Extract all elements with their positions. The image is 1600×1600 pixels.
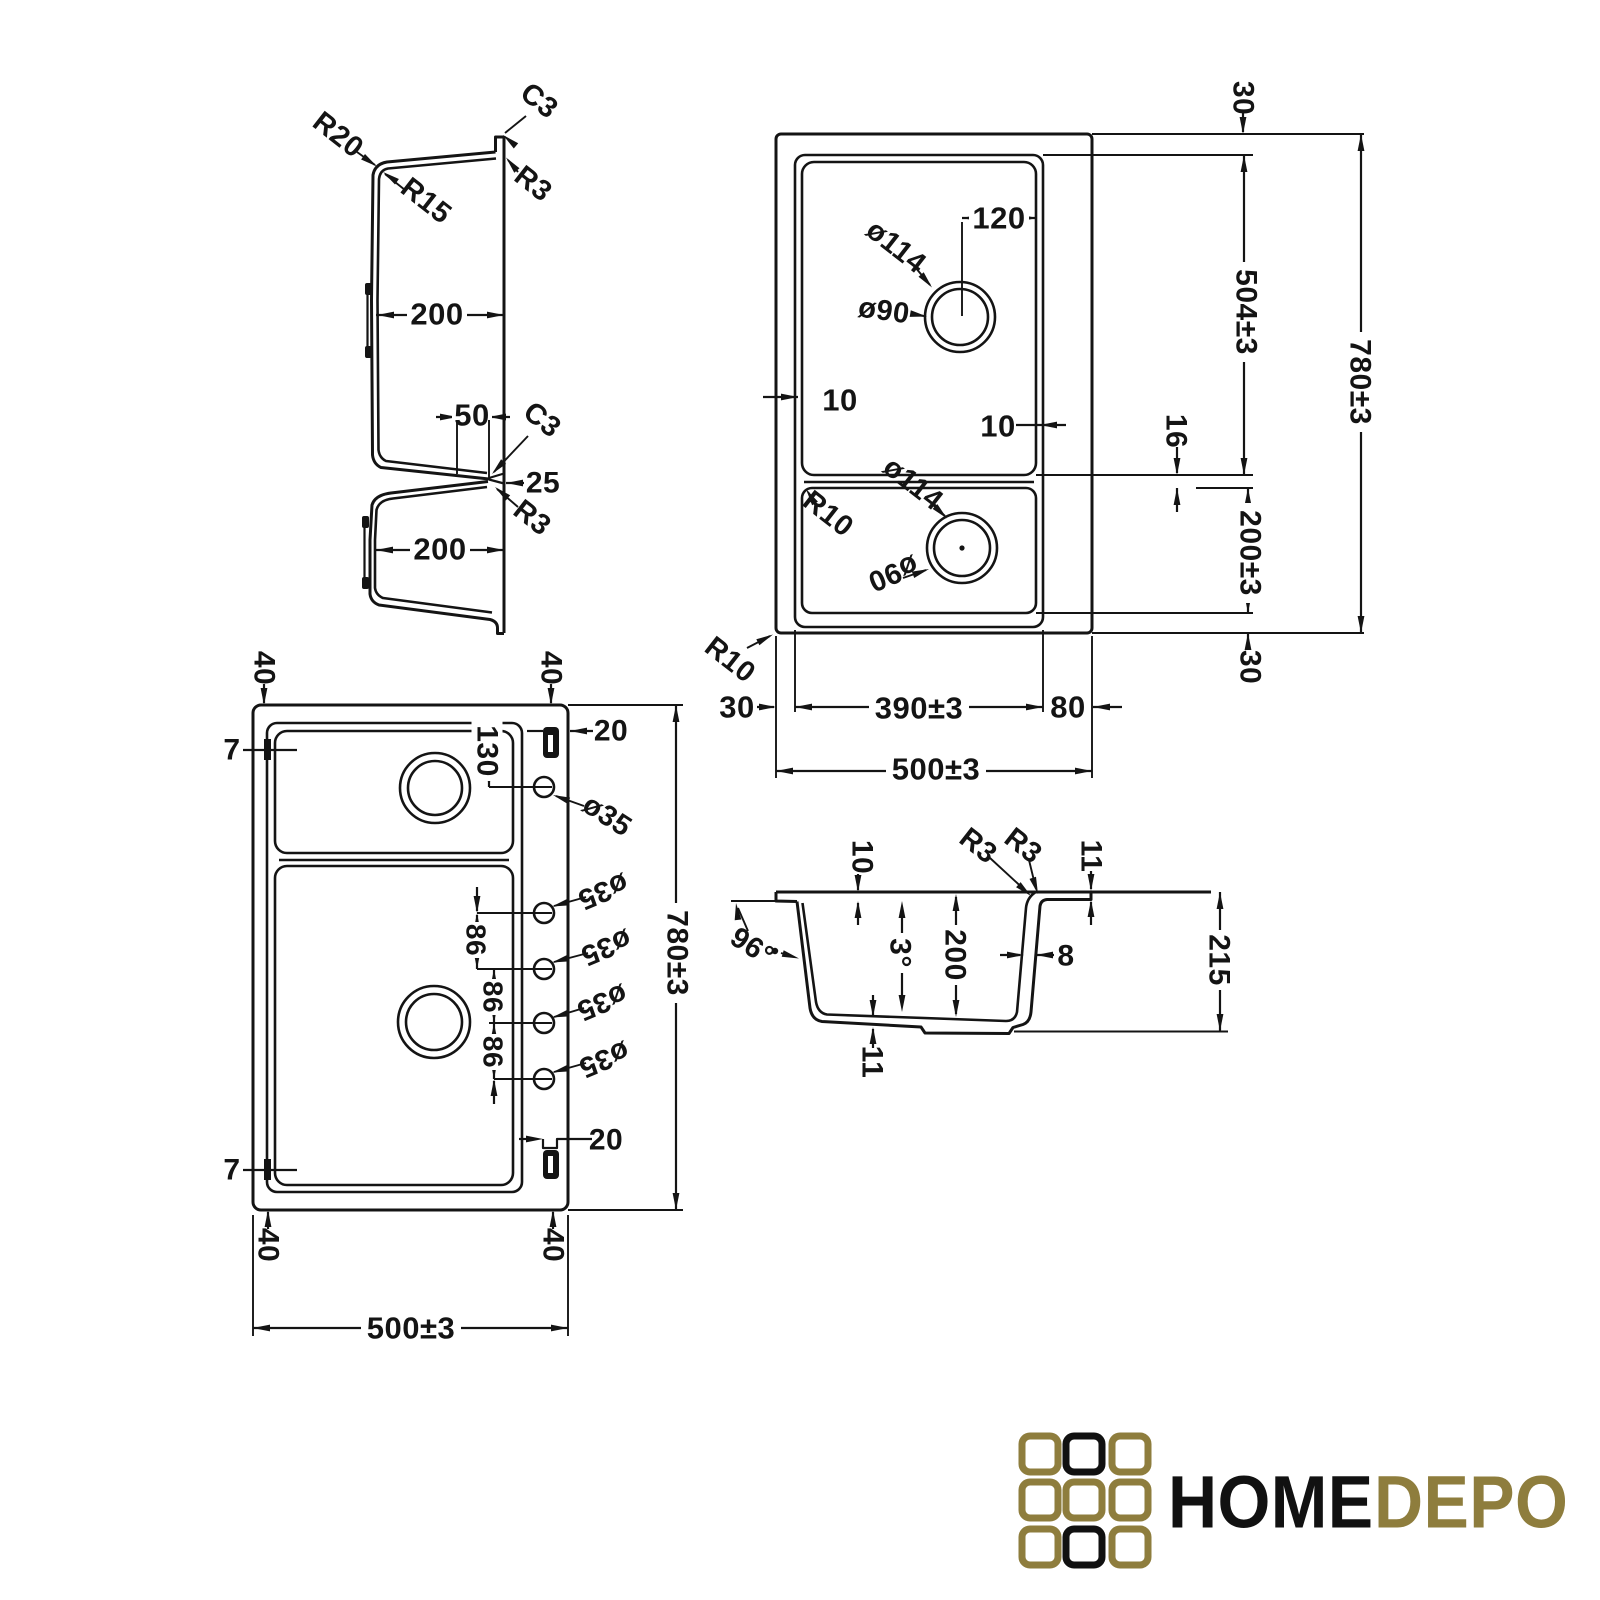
svg-text:130: 130 (471, 725, 504, 777)
svg-text:200: 200 (413, 532, 466, 567)
svg-text:30: 30 (1234, 650, 1267, 684)
svg-text:86: 86 (478, 981, 509, 1013)
svg-text:200±3: 200±3 (1234, 510, 1267, 596)
svg-text:390±3: 390±3 (875, 691, 963, 726)
svg-text:40: 40 (248, 651, 281, 685)
svg-text:40: 40 (537, 1228, 570, 1262)
svg-text:7: 7 (223, 734, 240, 767)
svg-text:86: 86 (461, 924, 492, 956)
svg-text:200: 200 (939, 929, 972, 981)
svg-text:504±3: 504±3 (1230, 269, 1263, 355)
svg-text:86: 86 (478, 1036, 509, 1068)
svg-text:3°: 3° (884, 938, 917, 968)
svg-text:HOME: HOME (1168, 1462, 1374, 1544)
svg-text:10: 10 (846, 840, 879, 874)
svg-text:30: 30 (1227, 81, 1260, 115)
svg-text:500±3: 500±3 (367, 1311, 455, 1346)
svg-text:40: 40 (535, 651, 568, 685)
svg-text:DEPO: DEPO (1374, 1462, 1568, 1544)
svg-text:20: 20 (594, 715, 628, 748)
svg-text:200: 200 (410, 297, 463, 332)
svg-text:80: 80 (1050, 690, 1085, 725)
svg-text:30: 30 (719, 690, 754, 725)
svg-text:780±3: 780±3 (661, 910, 694, 996)
svg-text:20: 20 (589, 1124, 623, 1157)
svg-text:215: 215 (1203, 934, 1236, 986)
svg-text:500±3: 500±3 (892, 752, 980, 787)
svg-text:780±3: 780±3 (1344, 339, 1377, 425)
svg-text:8: 8 (1057, 940, 1074, 973)
svg-text:11: 11 (1075, 840, 1108, 873)
svg-text:10: 10 (822, 383, 857, 418)
svg-text:40: 40 (252, 1228, 285, 1262)
svg-text:50: 50 (454, 398, 489, 433)
svg-text:11: 11 (856, 1046, 889, 1079)
svg-text:7: 7 (223, 1154, 240, 1187)
svg-text:25: 25 (526, 467, 560, 500)
svg-text:120: 120 (972, 201, 1025, 236)
svg-text:16: 16 (1160, 414, 1193, 448)
svg-text:10: 10 (980, 409, 1015, 444)
